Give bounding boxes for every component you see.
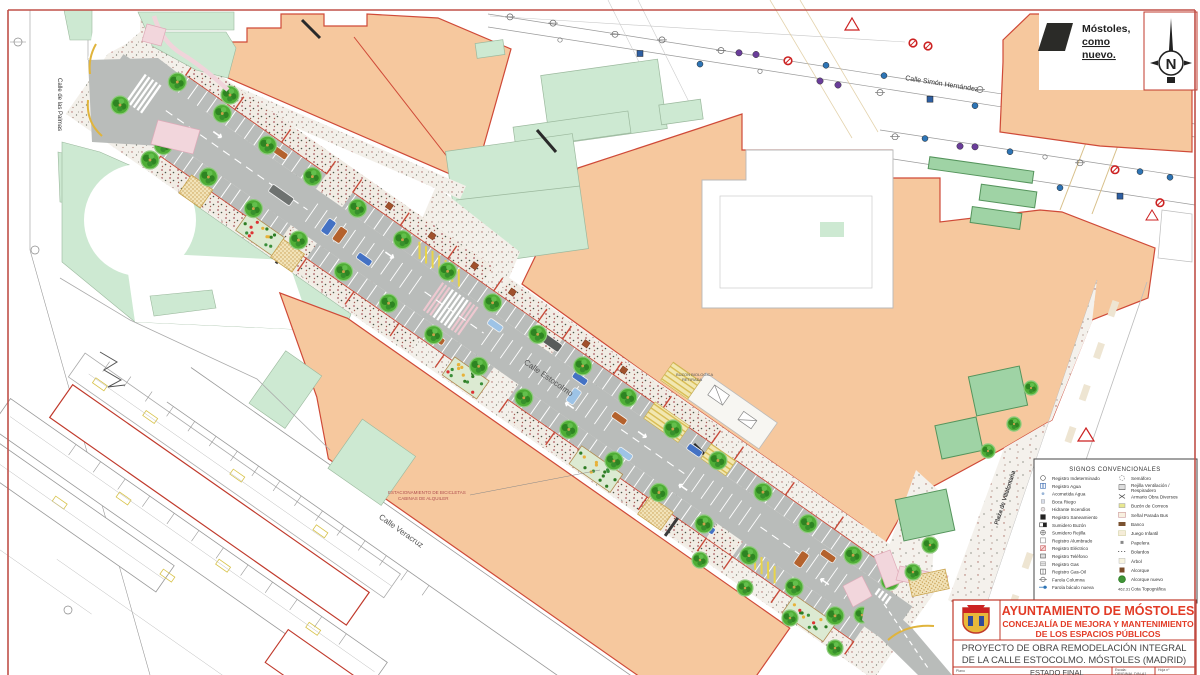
- svg-text:Sumidero Buzón: Sumidero Buzón: [1052, 523, 1086, 528]
- svg-text:Papelera: Papelera: [1131, 540, 1150, 545]
- svg-text:Señal Parada Bus: Señal Parada Bus: [1131, 513, 1169, 518]
- svg-text:Boca Riego: Boca Riego: [1052, 499, 1076, 504]
- svg-text:ESTADO FINAL: ESTADO FINAL: [1030, 668, 1084, 675]
- svg-text:Acometida Agua: Acometida Agua: [1052, 492, 1086, 497]
- svg-text:Registro Saneamiento: Registro Saneamiento: [1052, 515, 1098, 520]
- svg-text:Alcorque: Alcorque: [1131, 568, 1150, 573]
- svg-text:CABINAS DE ALQUILER: CABINAS DE ALQUILER: [398, 496, 449, 501]
- svg-text:como: como: [1082, 36, 1110, 48]
- svg-text:Registro Agua: Registro Agua: [1052, 484, 1081, 489]
- svg-text:Alcorque nuevo: Alcorque nuevo: [1131, 577, 1163, 582]
- svg-text:Registro Gas-Oil: Registro Gas-Oil: [1052, 570, 1086, 575]
- svg-text:Semáforo: Semáforo: [1131, 476, 1151, 481]
- svg-text:Registro Gas: Registro Gas: [1052, 562, 1080, 567]
- svg-text:Bolardos: Bolardos: [1131, 550, 1150, 555]
- svg-text:Armario Obra Diversos: Armario Obra Diversos: [1131, 494, 1178, 499]
- svg-text:Buzón de Correos: Buzón de Correos: [1131, 504, 1169, 509]
- svg-text:PROYECTO DE OBRA REMODELACIÓN: PROYECTO DE OBRA REMODELACIÓN INTEGRAL: [962, 642, 1187, 653]
- svg-text:Registro Indeterminado: Registro Indeterminado: [1052, 476, 1100, 481]
- svg-text:Registro Alumbrado: Registro Alumbrado: [1052, 538, 1093, 543]
- svg-text:Cota Topográfica: Cota Topográfica: [1131, 586, 1166, 591]
- svg-text:Registro Teléfono: Registro Teléfono: [1052, 554, 1088, 559]
- svg-text:Hoja nº: Hoja nº: [1158, 668, 1170, 672]
- svg-text:Sumidero Rejilla: Sumidero Rejilla: [1052, 531, 1086, 536]
- svg-text:CONCEJALÍA DE MEJORA Y MANTENI: CONCEJALÍA DE MEJORA Y MANTENIMIENTO: [1002, 619, 1194, 629]
- svg-text:AYUNTAMIENTO DE MÓSTOLES: AYUNTAMIENTO DE MÓSTOLES: [1002, 603, 1195, 618]
- svg-text:N: N: [1166, 56, 1177, 73]
- svg-text:Calle de las Palmas: Calle de las Palmas: [56, 78, 62, 131]
- svg-text:Árbol: Árbol: [1131, 558, 1142, 564]
- svg-text:Respiradero: Respiradero: [1131, 488, 1156, 493]
- svg-text:Farola báculo nueva: Farola báculo nueva: [1052, 585, 1094, 590]
- svg-text:462.31: 462.31: [1118, 586, 1131, 591]
- svg-text:Registro Eléctrico: Registro Eléctrico: [1052, 546, 1088, 551]
- svg-text:DE LOS ESPACIOS PÚBLICOS: DE LOS ESPACIOS PÚBLICOS: [1036, 628, 1161, 639]
- svg-text:Farola Columna: Farola Columna: [1052, 577, 1085, 582]
- svg-text:ESTACIONAMIENTO DE BICICLETAS: ESTACIONAMIENTO DE BICICLETAS: [388, 490, 466, 495]
- svg-text:Plano: Plano: [956, 669, 965, 673]
- svg-text:Móstoles,: Móstoles,: [1082, 23, 1131, 35]
- svg-text:nuevo.: nuevo.: [1082, 49, 1116, 61]
- svg-text:Juego Infantil: Juego Infantil: [1131, 531, 1158, 536]
- svg-text:Banco: Banco: [1131, 522, 1144, 527]
- svg-text:RETIRADA: RETIRADA: [682, 377, 703, 382]
- svg-text:SIGNOS CONVENCIONALES: SIGNOS CONVENCIONALES: [1069, 467, 1161, 473]
- svg-text:Hidrante Incendios: Hidrante Incendios: [1052, 507, 1091, 512]
- svg-text:DE LA CALLE ESTOCOLMO. MÓSTOLE: DE LA CALLE ESTOCOLMO. MÓSTOLES (MADRID): [962, 654, 1186, 665]
